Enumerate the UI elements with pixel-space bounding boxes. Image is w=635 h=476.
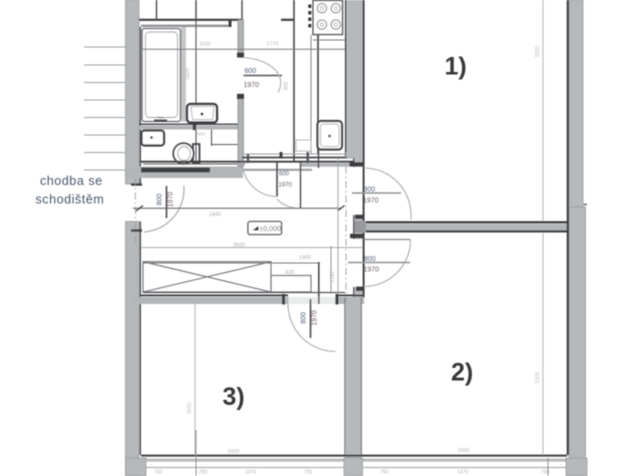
svg-text:2430: 2430 xyxy=(228,449,240,455)
svg-text:1840: 1840 xyxy=(209,212,221,218)
svg-text:1470: 1470 xyxy=(457,470,468,476)
svg-text:3650: 3650 xyxy=(187,402,193,414)
svg-text:3): 3) xyxy=(223,383,245,411)
svg-text:2): 2) xyxy=(451,359,473,387)
svg-text:1970: 1970 xyxy=(244,82,260,89)
svg-text:800: 800 xyxy=(301,312,308,324)
svg-text:1970: 1970 xyxy=(312,310,319,326)
svg-text:±0,000: ±0,000 xyxy=(260,226,281,233)
svg-text:900: 900 xyxy=(284,82,290,91)
svg-text:1970: 1970 xyxy=(279,182,293,188)
svg-text:800: 800 xyxy=(364,186,376,193)
svg-text:750: 750 xyxy=(154,470,163,476)
svg-text:3430: 3430 xyxy=(458,448,470,454)
svg-text:750: 750 xyxy=(304,470,313,476)
svg-text:3600: 3600 xyxy=(233,242,245,248)
svg-text:600: 600 xyxy=(245,68,257,75)
svg-text:1770: 1770 xyxy=(267,42,279,48)
svg-text:5100: 5100 xyxy=(535,371,541,383)
svg-text:1): 1) xyxy=(445,53,467,81)
svg-text:1470: 1470 xyxy=(245,470,256,476)
svg-text:5050: 5050 xyxy=(535,45,541,57)
svg-text:1630: 1630 xyxy=(199,42,211,48)
svg-text:800: 800 xyxy=(157,194,164,206)
svg-text:1600: 1600 xyxy=(185,68,191,80)
svg-text:2150: 2150 xyxy=(330,271,336,283)
svg-text:1970: 1970 xyxy=(364,266,380,273)
svg-text:250: 250 xyxy=(199,470,208,476)
svg-text:800: 800 xyxy=(364,256,376,263)
svg-text:630: 630 xyxy=(286,270,295,276)
svg-text:600: 600 xyxy=(197,132,205,138)
svg-text:750: 750 xyxy=(380,470,389,476)
svg-text:1400: 1400 xyxy=(299,255,311,261)
svg-text:chodba se: chodba se xyxy=(40,174,103,188)
svg-text:600: 600 xyxy=(279,171,290,177)
svg-text:schodištěm: schodištěm xyxy=(36,193,105,207)
svg-text:1970: 1970 xyxy=(168,192,175,208)
svg-text:1970: 1970 xyxy=(363,197,379,204)
